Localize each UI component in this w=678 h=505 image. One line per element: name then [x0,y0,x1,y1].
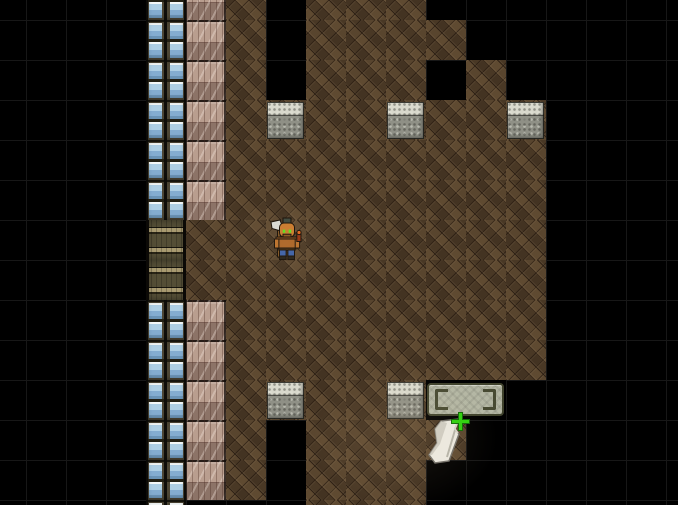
floor-tile[interactable] [226,180,266,220]
game-window [0,0,678,505]
floor-tile[interactable] [226,300,266,340]
floor-tile[interactable] [226,220,266,260]
floor-tile[interactable] [306,460,346,500]
floor-tile[interactable] [346,380,386,420]
floor-tile[interactable] [226,60,266,100]
floor-tile[interactable] [226,260,266,300]
floor-tile[interactable] [426,260,466,300]
floor-tile[interactable] [226,380,266,420]
floor-tile[interactable] [306,220,346,260]
window-wall-tile [146,460,186,500]
floor-tile[interactable] [306,20,346,60]
floor-tile[interactable] [226,20,266,60]
floor-tile[interactable] [306,300,346,340]
window-wall-tile [146,180,186,220]
floor-tile[interactable] [266,220,306,260]
floor-tile[interactable] [346,60,386,100]
floor-tile[interactable] [466,260,506,300]
floor-tile[interactable] [306,260,346,300]
floor-tile[interactable] [266,260,306,300]
floor-tile[interactable] [346,500,386,505]
door-tile[interactable] [146,260,186,300]
floor-tile[interactable] [426,140,466,180]
plank-wall-tile [186,60,226,100]
floor-tile[interactable] [346,300,386,340]
floor-tile[interactable] [466,100,506,140]
floor-tile[interactable] [506,340,546,380]
floor-tile[interactable] [466,60,506,100]
floor-tile[interactable] [426,100,466,140]
floor-tile[interactable] [466,300,506,340]
floor-tile[interactable] [386,60,426,100]
stone-pillar[interactable] [267,102,304,139]
floor-tile[interactable] [386,500,426,505]
floor-tile[interactable] [346,340,386,380]
floor-tile[interactable] [346,220,386,260]
floor-tile[interactable] [346,100,386,140]
window-wall-tile [146,420,186,460]
floor-tile[interactable] [226,100,266,140]
floor-tile[interactable] [386,0,426,20]
floor-tile[interactable] [226,140,266,180]
floor-tile[interactable] [506,140,546,180]
floor-tile[interactable] [386,100,426,140]
stone-pillar[interactable] [387,382,424,419]
floor-tile[interactable] [506,100,546,140]
floor-tile[interactable] [226,460,266,500]
window-wall-tile [146,340,186,380]
floor-tile[interactable] [266,100,306,140]
floor-tile[interactable] [306,60,346,100]
plank-wall-tile [186,100,226,140]
plank-wall-tile [186,20,226,60]
plank-wall-tile [186,300,226,340]
floor-tile[interactable] [306,140,346,180]
floor-tile[interactable] [306,340,346,380]
floor-tile[interactable] [346,260,386,300]
table-right-bracket [483,389,496,410]
floor-tile[interactable] [306,420,346,460]
cursor-cross-icon [451,412,470,431]
floor-tile[interactable] [226,340,266,380]
floor-tile[interactable] [466,340,506,380]
floor-tile[interactable] [386,180,426,220]
floor-tile[interactable] [306,0,346,20]
floor-tile[interactable] [306,500,346,505]
floor-tile[interactable] [346,460,386,500]
stone-pillar[interactable] [387,102,424,139]
floor-tile[interactable] [426,180,466,220]
door-tile[interactable] [146,220,186,260]
floor-tile[interactable] [266,340,306,380]
plank-wall-tile [186,460,226,500]
floor-tile[interactable] [306,380,346,420]
game-viewport [0,0,678,505]
floor-tile[interactable] [346,20,386,60]
player-character[interactable] [266,215,306,263]
plank-wall-tile [186,140,226,180]
floor-tile[interactable] [386,220,426,260]
floor-tile[interactable] [386,20,426,60]
floor-tile[interactable] [346,180,386,220]
floor-tile[interactable] [306,100,346,140]
floor-tile[interactable] [466,220,506,260]
stone-pillar[interactable] [507,102,544,139]
window-wall-tile [146,0,186,20]
floor-tile[interactable] [186,220,226,260]
floor-tile[interactable] [426,340,466,380]
window-wall-tile [146,100,186,140]
table-left-bracket [435,389,448,410]
window-wall-tile [146,20,186,60]
plank-wall-tile [186,180,226,220]
floor-tile[interactable] [466,180,506,220]
floor-tile[interactable] [226,420,266,460]
stone-pillar[interactable] [267,382,304,419]
window-wall-tile [146,60,186,100]
floor-tile[interactable] [186,260,226,300]
floor-tile[interactable] [386,340,426,380]
floor-tile[interactable] [386,140,426,180]
floor-tile[interactable] [266,300,306,340]
floor-tile[interactable] [346,140,386,180]
floor-tile[interactable] [266,140,306,180]
plank-wall-tile [186,0,226,20]
floor-tile[interactable] [466,140,506,180]
floor-tile[interactable] [386,260,426,300]
floor-tile[interactable] [386,420,426,460]
floor-tile[interactable] [266,180,306,220]
plank-wall-tile [186,420,226,460]
floor-tile[interactable] [506,260,546,300]
window-wall-tile [146,300,186,340]
window-wall-tile [146,380,186,420]
plank-wall-tile [186,380,226,420]
floor-tile[interactable] [426,300,466,340]
floor-tile[interactable] [386,460,426,500]
floor-tile[interactable] [506,180,546,220]
floor-tile[interactable] [386,380,426,420]
floor-tile[interactable] [346,420,386,460]
floor-tile[interactable] [426,20,466,60]
floor-tile[interactable] [426,220,466,260]
plank-wall-tile [186,340,226,380]
floor-tile[interactable] [226,0,266,20]
floor-tile[interactable] [506,300,546,340]
window-wall-tile [146,500,186,505]
floor-tile[interactable] [506,220,546,260]
floor-tile[interactable] [386,300,426,340]
floor-tile[interactable] [266,380,306,420]
window-wall-tile [146,140,186,180]
floor-tile[interactable] [346,0,386,20]
floor-tile[interactable] [306,180,346,220]
